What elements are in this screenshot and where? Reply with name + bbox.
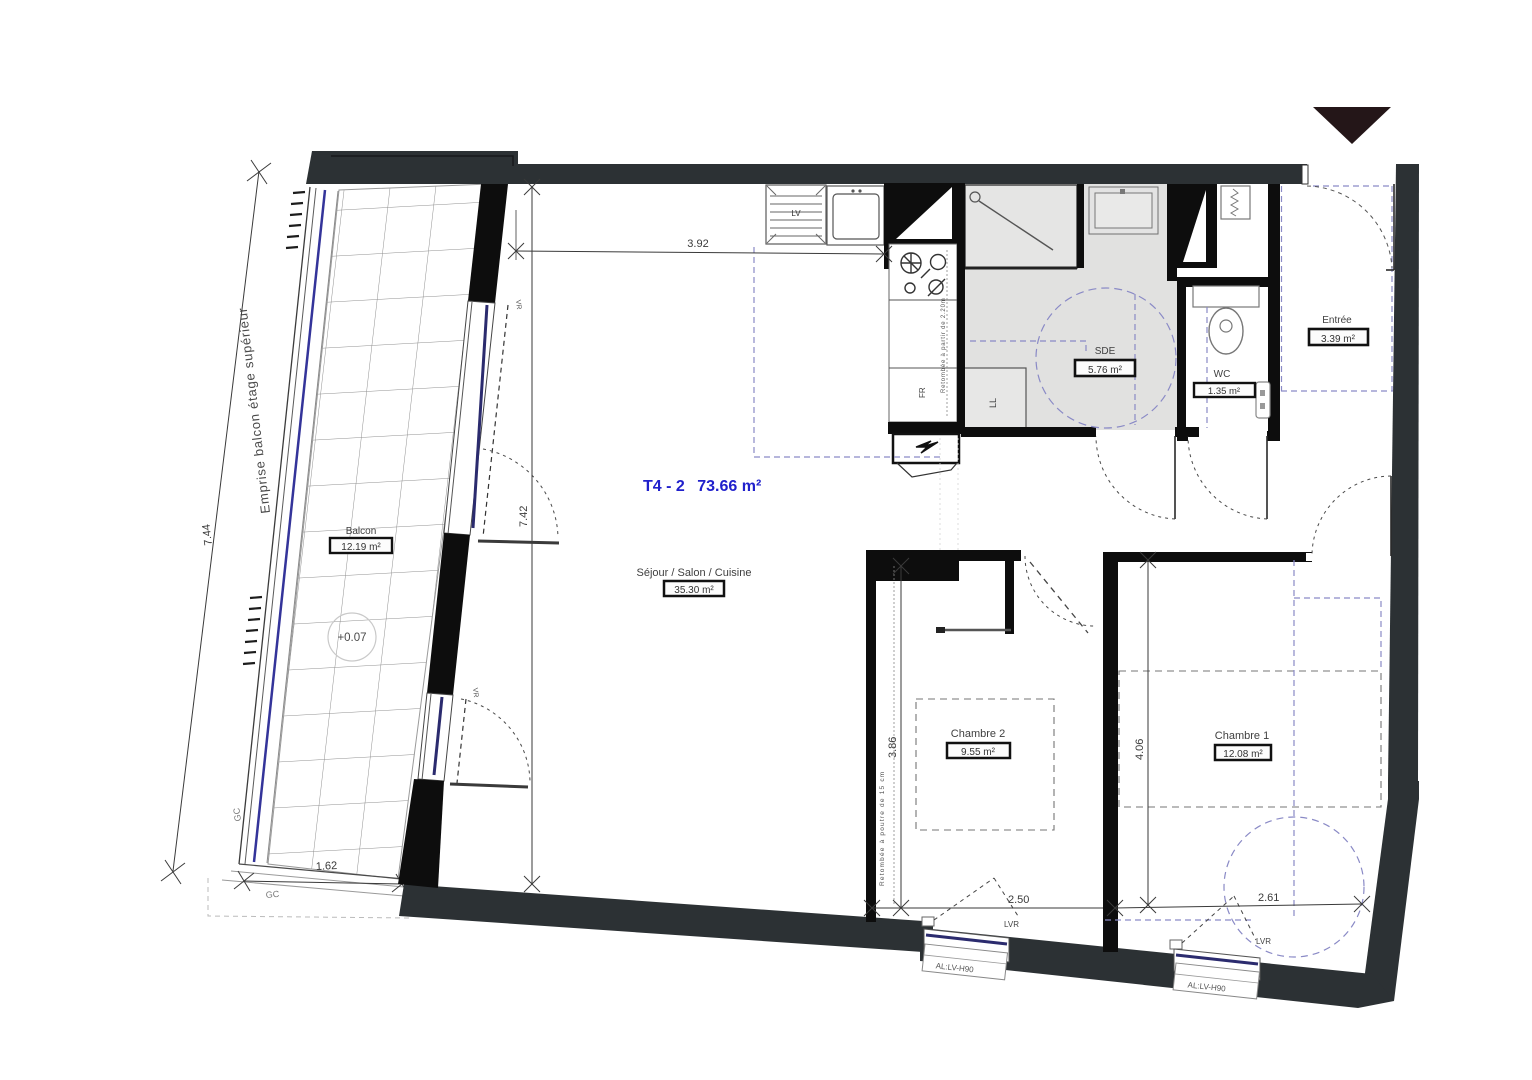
svg-text:9.55 m²: 9.55 m² — [961, 747, 996, 758]
svg-text:1.35 m²: 1.35 m² — [1208, 386, 1240, 397]
svg-text:GC: GC — [265, 889, 280, 900]
svg-text:7.42: 7.42 — [518, 506, 530, 527]
svg-text:2.61: 2.61 — [1258, 892, 1279, 904]
svg-text:FR: FR — [918, 387, 927, 398]
svg-text:LVR: LVR — [1004, 920, 1019, 929]
svg-text:SDE: SDE — [1095, 346, 1116, 357]
svg-text:12.19 m²: 12.19 m² — [341, 542, 381, 553]
svg-text:LVR: LVR — [1256, 937, 1271, 946]
svg-text:Chambre 1: Chambre 1 — [1215, 730, 1269, 742]
svg-text:Balcon: Balcon — [346, 526, 377, 537]
svg-text:4.06: 4.06 — [1134, 739, 1146, 760]
svg-text:3.86: 3.86 — [887, 737, 899, 758]
svg-text:T4 - 2 73.66 m²: T4 - 2 73.66 m² — [643, 478, 761, 495]
svg-text:Chambre 2: Chambre 2 — [951, 728, 1005, 740]
svg-text:WC: WC — [1214, 369, 1231, 380]
svg-text:LV: LV — [791, 209, 801, 218]
svg-text:GC: GC — [231, 807, 243, 822]
svg-text:Entrée: Entrée — [1322, 315, 1352, 326]
svg-text:12.08 m²: 12.08 m² — [1223, 749, 1263, 760]
svg-text:5.76 m²: 5.76 m² — [1088, 365, 1123, 376]
svg-text:VR: VR — [471, 687, 479, 697]
svg-text:2.50: 2.50 — [1008, 894, 1029, 906]
svg-text:3.92: 3.92 — [687, 238, 708, 250]
svg-text:Séjour / Salon / Cuisine: Séjour / Salon / Cuisine — [637, 567, 752, 579]
svg-text:LL: LL — [988, 398, 998, 408]
svg-text:+0.07: +0.07 — [337, 632, 366, 644]
svg-text:3.39 m²: 3.39 m² — [1321, 334, 1356, 345]
svg-text:35.30 m²: 35.30 m² — [674, 585, 714, 596]
svg-text:Retombée à poutre de 15 cm: Retombée à poutre de 15 cm — [879, 771, 886, 886]
svg-text:1.62: 1.62 — [316, 860, 338, 873]
svg-text:Retombée à partir de 2.20m: Retombée à partir de 2.20m — [941, 297, 947, 393]
svg-text:VR: VR — [514, 299, 522, 309]
